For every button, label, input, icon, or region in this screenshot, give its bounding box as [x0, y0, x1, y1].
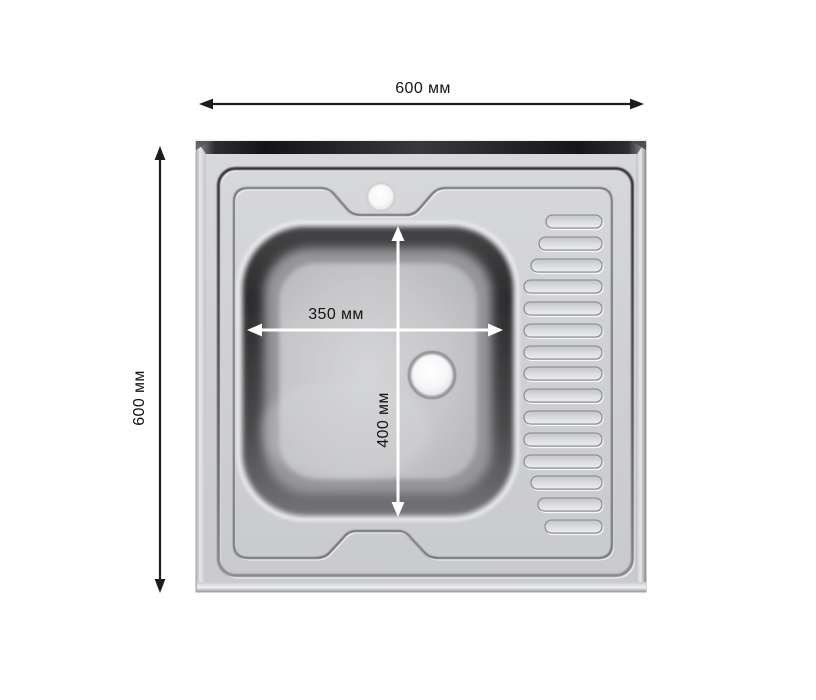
drainboard-rib: [531, 259, 603, 274]
sink-bottom-bevel: [197, 582, 646, 592]
drain-hole: [409, 352, 455, 398]
overall-height-label: 600 мм: [131, 370, 149, 426]
drainboard-rib: [524, 302, 603, 317]
drainboard-rib: [524, 367, 603, 382]
sink-left-bevel: [196, 141, 206, 591]
drainboard-rib: [531, 476, 603, 491]
arrowhead-right: [630, 99, 644, 110]
faucet-hole: [368, 184, 395, 211]
drainboard-rib: [545, 520, 603, 535]
arrowhead-bottom: [155, 579, 166, 593]
drainboard-rib: [524, 280, 603, 295]
drainboard-rib: [524, 346, 603, 361]
sink-bowl: [239, 223, 518, 520]
overall-width-arrow: [199, 99, 644, 110]
sink-right-bevel: [636, 141, 646, 591]
drainboard-rib: [538, 498, 603, 513]
bowl-height-label: 400 мм: [375, 392, 393, 448]
sink-top-bevel: [197, 141, 646, 154]
bowl-width-label: 350 мм: [308, 306, 364, 324]
drainboard-rib: [524, 411, 603, 426]
sink-illustration: [0, 0, 816, 700]
overall-height-arrow: [155, 146, 166, 593]
diagram-canvas: 600 мм 600 мм 350 мм 400 мм: [0, 0, 816, 700]
drainboard-rib: [546, 215, 603, 230]
drainboard-rib: [524, 433, 603, 448]
arrowhead-left: [199, 99, 213, 110]
overall-width-label: 600 мм: [395, 80, 451, 98]
arrowhead-top: [155, 146, 166, 160]
drainboard-rib: [524, 455, 603, 470]
drainboard-rib: [524, 324, 603, 339]
drainboard-rib: [539, 237, 603, 252]
drainboard-rib: [524, 389, 603, 404]
drainboard: [524, 215, 603, 535]
